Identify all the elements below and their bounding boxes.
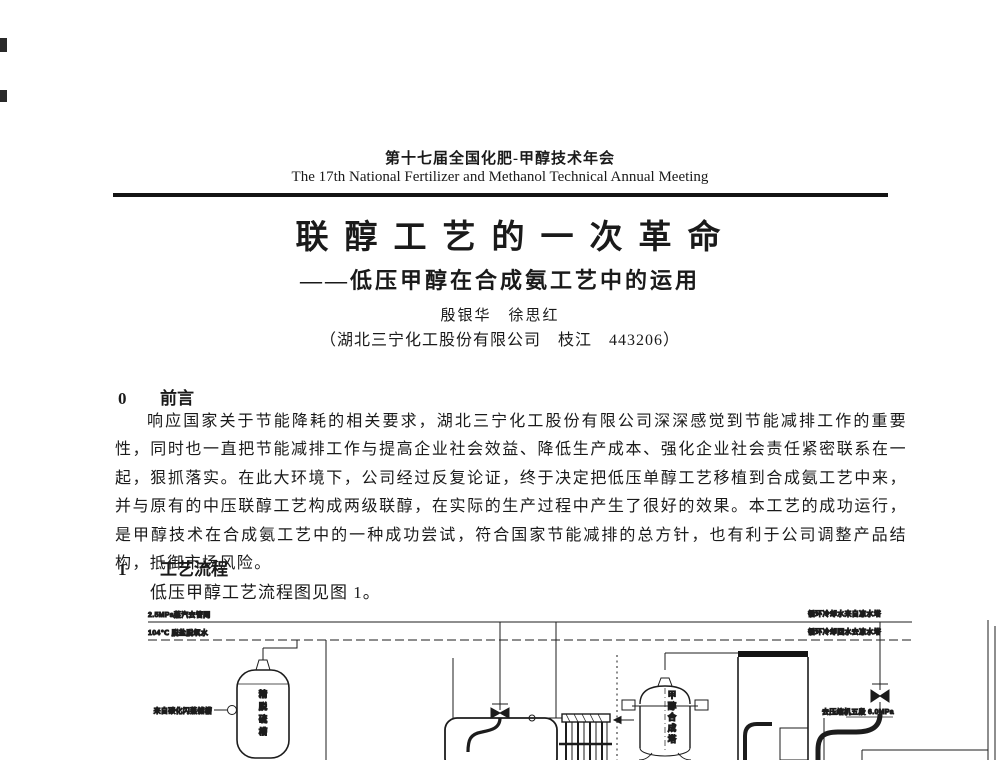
thick-pipe-elbow: [818, 714, 880, 760]
paper-title: 联醇工艺的一次革命: [0, 210, 1000, 258]
column-top-cap: [256, 660, 270, 670]
feed-label: 来自碳化闪蒸储槽: [153, 706, 212, 715]
internal-dip-pipe: [468, 718, 500, 752]
section-1-title: 工艺流程: [160, 560, 228, 579]
paper-subtitle: ——低压甲醇在合成氨工艺中的运用: [0, 263, 1000, 295]
separator-drum: [445, 704, 557, 760]
authors: 殷银华 徐思红: [0, 304, 1000, 325]
valve-icon: [871, 690, 880, 702]
scan-artifact: [0, 90, 7, 102]
methanol-tower: [622, 653, 740, 760]
process-flow-diagram: 2.5MPa蒸汽去管网 104℃ 脱盐脱氧水 循环冷却水来自凉水塔 循环冷却回水…: [0, 600, 1000, 760]
steam-line-label: 2.5MPa蒸汽去管网: [148, 610, 210, 619]
thick-pipe-elbow: [745, 724, 772, 760]
header-rule: [113, 193, 888, 197]
section-1-number: 1: [118, 560, 160, 580]
tower-top-cap: [658, 678, 672, 686]
valve-icon: [500, 708, 509, 718]
scan-artifact: [0, 38, 7, 52]
section-1-heading: 1工艺流程: [118, 555, 228, 580]
valve-icon: [491, 708, 500, 718]
meeting-title-chinese: 第十七届全国化肥-甲醇技术年会: [0, 147, 1000, 168]
meeting-title-english: The 17th National Fertilizer and Methano…: [0, 169, 1000, 186]
section-0-number: 0: [118, 389, 160, 409]
water-cooler: [529, 714, 634, 760]
column-label: 精脱硫槽: [259, 689, 268, 737]
tower-label: 甲醇合成塔: [667, 690, 677, 744]
valve-icon: [880, 690, 889, 702]
to-compressor-label: 去压缩机五段 6.0MPa: [822, 707, 894, 716]
section-0-title: 前言: [160, 389, 194, 408]
column-overhead-pipe: [263, 640, 297, 648]
desulfurization-column: [214, 640, 326, 760]
cooling-return-label: 循环冷却回水去凉水塔: [808, 627, 882, 636]
affiliation: （湖北三宁化工股份有限公司 枝江 443206）: [0, 326, 1000, 350]
exchanger-box: [738, 651, 808, 760]
section-0-paragraph: 响应国家关于节能降耗的相关要求，湖北三宁化工股份有限公司深深感觉到节能减排工作的…: [115, 408, 907, 578]
water-line-label: 104℃ 脱盐脱氧水: [148, 628, 209, 637]
control-valve-assembly: [818, 622, 889, 760]
section-0-heading: 0前言: [118, 384, 194, 409]
cooling-supply-label: 循环冷却水来自凉水塔: [808, 609, 882, 618]
feed-nozzle: [228, 706, 237, 715]
